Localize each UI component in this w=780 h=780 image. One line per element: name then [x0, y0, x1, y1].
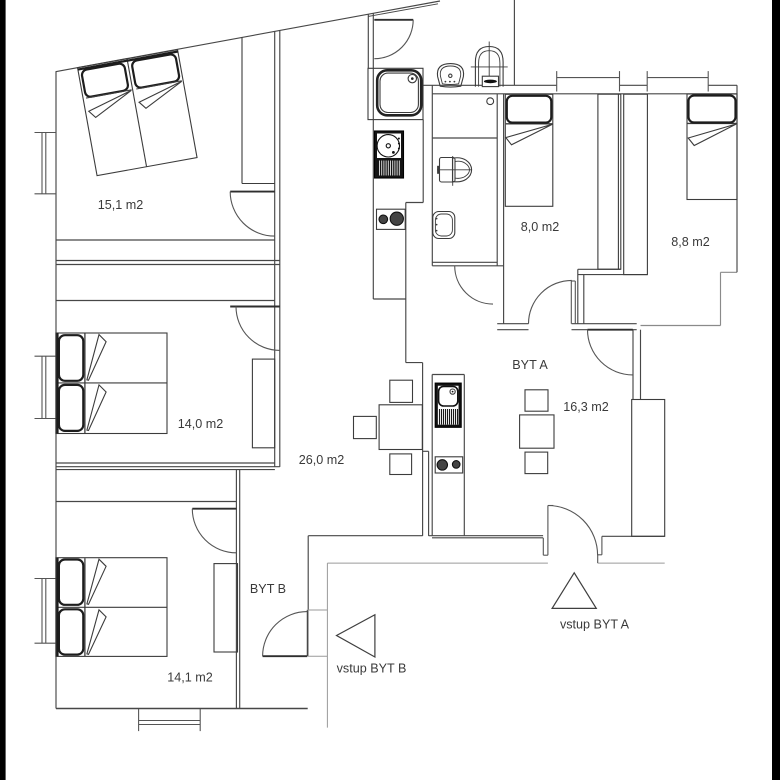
svg-text:8,8 m2: 8,8 m2: [671, 235, 710, 249]
svg-text:15,1 m2: 15,1 m2: [98, 198, 144, 212]
svg-text:14,1 m2: 14,1 m2: [167, 671, 213, 685]
svg-text:BYT A: BYT A: [512, 358, 548, 372]
svg-text:26,0 m2: 26,0 m2: [299, 453, 345, 467]
svg-text:BYT B: BYT B: [250, 582, 286, 596]
svg-text:8,0 m2: 8,0 m2: [521, 220, 560, 234]
svg-text:16,3 m2: 16,3 m2: [563, 400, 609, 414]
svg-text:14,0 m2: 14,0 m2: [178, 417, 224, 431]
svg-text:vstup BYT A: vstup BYT A: [560, 617, 630, 631]
svg-text:vstup BYT B: vstup BYT B: [337, 662, 407, 676]
